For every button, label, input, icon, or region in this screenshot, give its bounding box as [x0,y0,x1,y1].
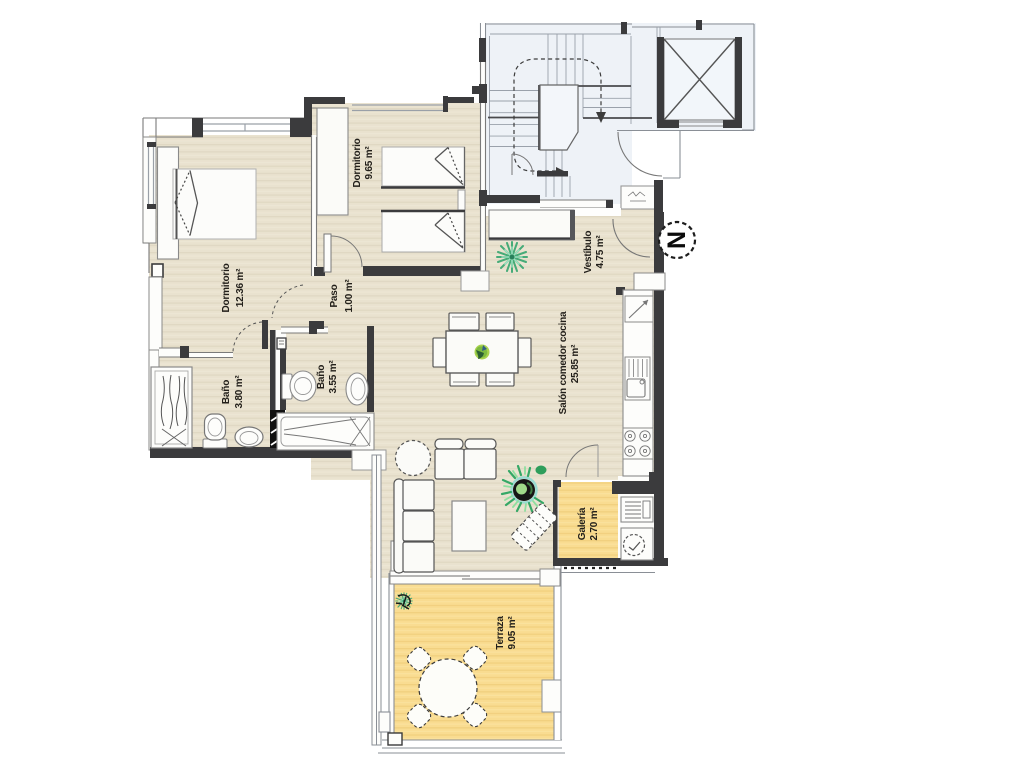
svg-text:Terraza: Terraza [495,616,506,650]
svg-text:12.36 m²: 12.36 m² [235,268,246,307]
svg-text:Dormitorio: Dormitorio [352,138,363,187]
svg-text:Dormitorio: Dormitorio [221,263,232,312]
svg-text:2.70 m²: 2.70 m² [589,507,600,541]
svg-text:Vestíbulo: Vestíbulo [583,231,594,274]
svg-text:Paso: Paso [329,284,340,307]
svg-text:25.85 m²: 25.85 m² [570,344,581,383]
svg-text:9.65 m²: 9.65 m² [364,146,375,180]
svg-text:Baño: Baño [316,365,327,389]
svg-text:3.80 m²: 3.80 m² [234,375,245,409]
svg-text:Salón comedor cocina: Salón comedor cocina [558,311,569,414]
svg-text:Galería: Galería [577,507,588,540]
svg-text:Baño: Baño [221,380,232,404]
svg-text:1.00 m²: 1.00 m² [344,279,355,313]
svg-text:9.05 m²: 9.05 m² [507,616,518,650]
svg-text:3.55 m²: 3.55 m² [328,360,339,394]
svg-text:N: N [663,231,691,249]
svg-text:4.75 m²: 4.75 m² [595,235,606,269]
